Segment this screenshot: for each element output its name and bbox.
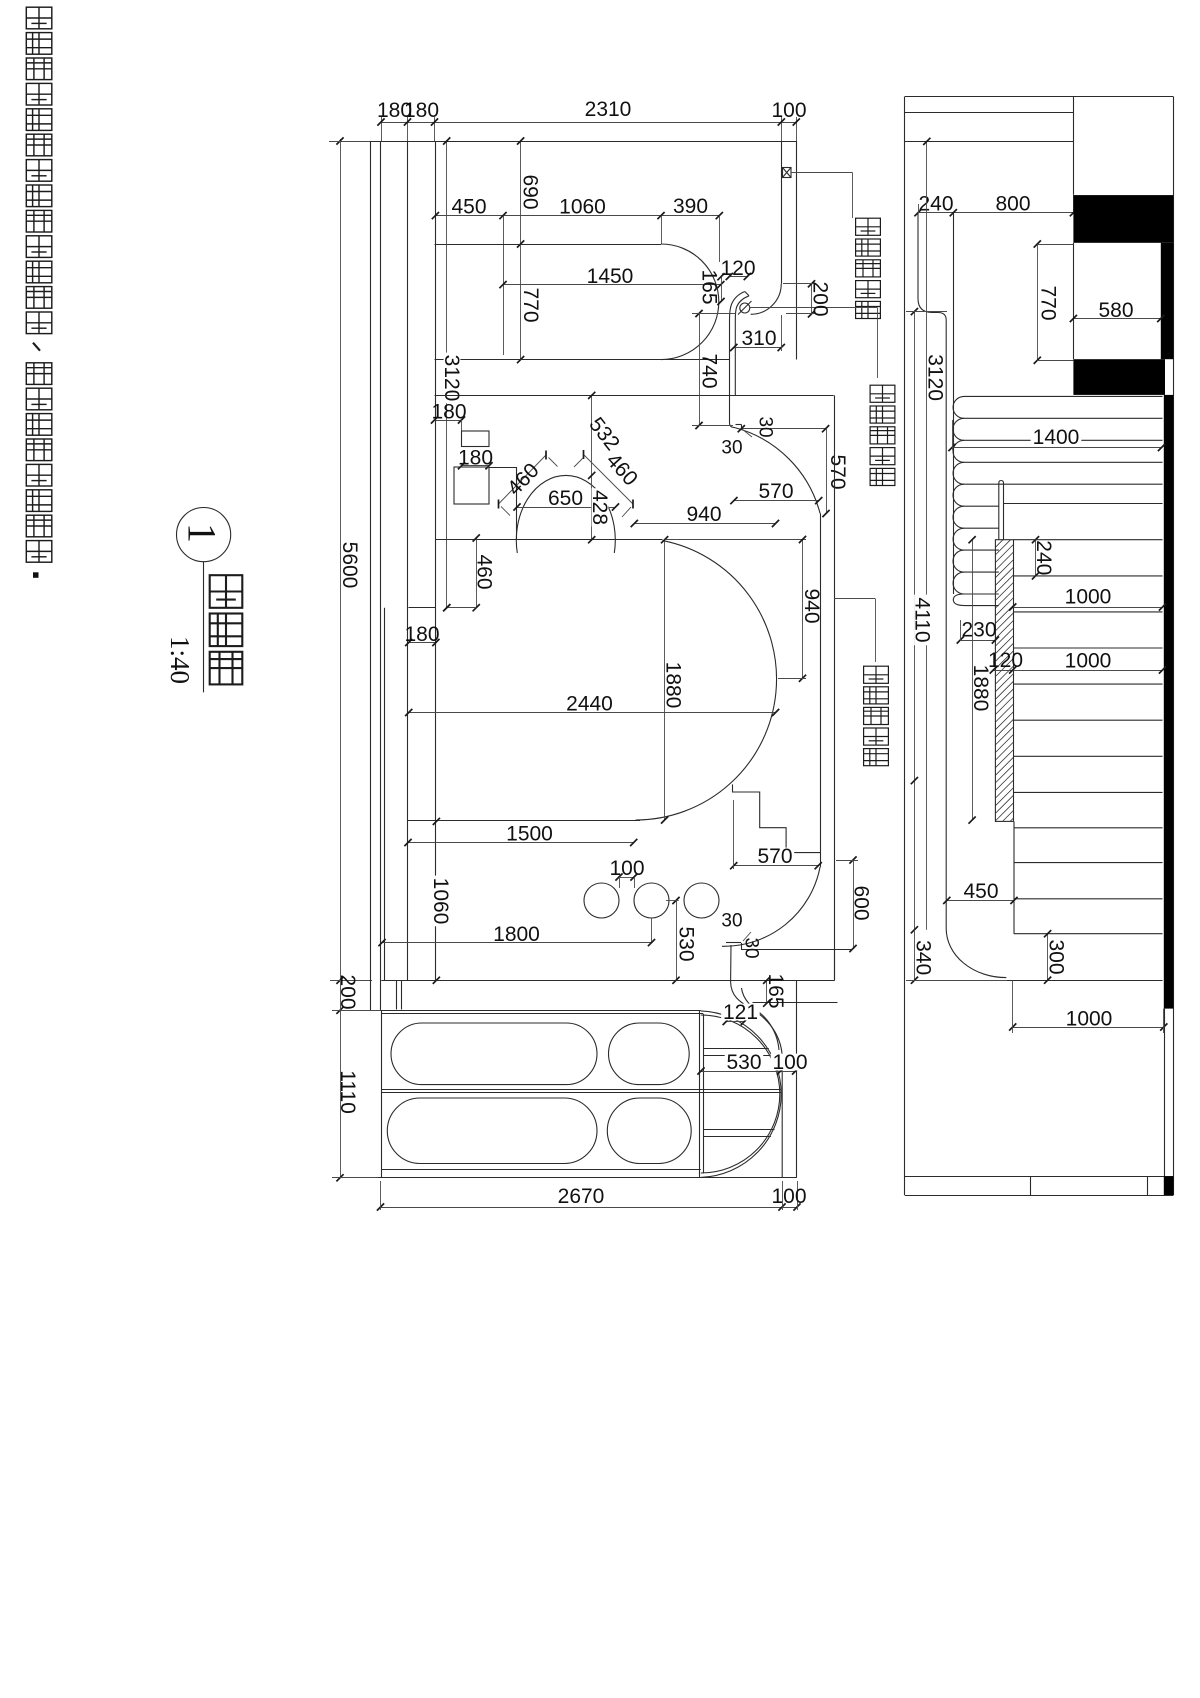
svg-text:1880: 1880 (661, 662, 684, 709)
svg-text:5600: 5600 (338, 542, 361, 589)
svg-text:690: 690 (518, 174, 541, 209)
svg-text:570: 570 (826, 454, 849, 489)
svg-text:2310: 2310 (585, 98, 632, 121)
svg-text:570: 570 (758, 480, 793, 503)
svg-text:165: 165 (697, 269, 720, 304)
svg-text:3120: 3120 (440, 355, 463, 402)
svg-text:770: 770 (519, 287, 542, 322)
svg-text:240: 240 (918, 193, 953, 216)
svg-text:121: 121 (723, 1001, 758, 1024)
svg-text:2440: 2440 (566, 693, 613, 716)
svg-text:200: 200 (336, 974, 359, 1009)
svg-text:570: 570 (757, 845, 792, 868)
svg-text:1:40: 1:40 (165, 636, 195, 684)
svg-text:1060: 1060 (559, 196, 606, 219)
svg-text:30: 30 (741, 937, 762, 958)
svg-text:1880: 1880 (969, 665, 992, 712)
svg-text:4110: 4110 (910, 597, 933, 642)
svg-text:390: 390 (673, 195, 708, 218)
svg-text:180: 180 (431, 401, 466, 424)
svg-text:100: 100 (609, 857, 644, 880)
svg-text:1000: 1000 (1065, 650, 1112, 673)
svg-text:940: 940 (686, 503, 721, 526)
svg-text:800: 800 (995, 193, 1030, 216)
svg-text:340: 340 (911, 940, 934, 975)
svg-text:300: 300 (1044, 939, 1067, 974)
svg-text:1060: 1060 (429, 878, 452, 925)
svg-text:450: 450 (963, 880, 998, 903)
svg-text:460: 460 (472, 554, 495, 589)
svg-text:230: 230 (961, 619, 996, 642)
svg-text:100: 100 (772, 1051, 807, 1074)
svg-text:165: 165 (764, 973, 787, 1008)
svg-text:600: 600 (849, 885, 872, 920)
svg-text:650: 650 (548, 487, 583, 510)
svg-text:310: 310 (741, 327, 776, 350)
svg-text:240: 240 (1032, 540, 1055, 575)
svg-text:770: 770 (1036, 285, 1059, 320)
svg-text:1500: 1500 (506, 823, 553, 846)
svg-text:940: 940 (800, 588, 823, 623)
svg-text:580: 580 (1098, 299, 1133, 322)
svg-text:180: 180 (458, 447, 493, 470)
svg-text:740: 740 (697, 353, 720, 388)
svg-text:180: 180 (404, 99, 439, 122)
svg-text:3120: 3120 (923, 354, 946, 401)
svg-text:30: 30 (721, 438, 742, 459)
svg-text:1: 1 (180, 523, 225, 543)
svg-text:120: 120 (720, 257, 755, 280)
svg-text:2670: 2670 (558, 1185, 605, 1208)
svg-text:1110: 1110 (336, 1070, 359, 1114)
svg-text:200: 200 (808, 281, 831, 316)
svg-text:180: 180 (404, 623, 439, 646)
svg-text:100: 100 (771, 99, 806, 122)
svg-text:1000: 1000 (1066, 1008, 1113, 1031)
svg-text:1800: 1800 (493, 923, 540, 946)
svg-text:530: 530 (674, 926, 697, 961)
svg-text:1450: 1450 (587, 265, 634, 288)
svg-text:120: 120 (988, 649, 1023, 672)
svg-text:30: 30 (721, 911, 742, 932)
svg-text:100: 100 (771, 1185, 806, 1208)
svg-text:1000: 1000 (1065, 586, 1112, 609)
svg-text:30: 30 (755, 416, 776, 437)
svg-text:428: 428 (588, 490, 611, 525)
svg-text:1400: 1400 (1033, 426, 1080, 449)
svg-text:450: 450 (451, 196, 486, 219)
svg-text:530: 530 (726, 1051, 761, 1074)
